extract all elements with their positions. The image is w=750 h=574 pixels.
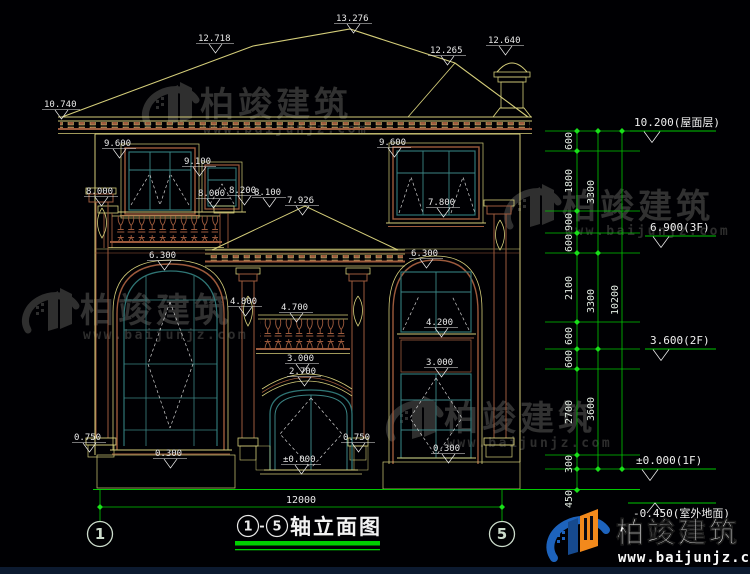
svg-text:4.800: 4.800 bbox=[230, 297, 257, 307]
svg-text:3.600(2F): 3.600(2F) bbox=[650, 334, 710, 347]
svg-text:7.800: 7.800 bbox=[428, 198, 455, 208]
dim-1800: 1800 bbox=[564, 169, 575, 193]
svg-text:9.600: 9.600 bbox=[379, 138, 406, 148]
footer-url: www.baijunjz.com bbox=[618, 550, 750, 566]
dim-600-a: 600 bbox=[564, 132, 575, 150]
elevation-drawing: 柏竣建筑 www.baijunjz.com 柏竣建筑 www.baijunjz.… bbox=[0, 0, 750, 574]
svg-text:8.000: 8.000 bbox=[198, 189, 225, 199]
svg-text:6.300: 6.300 bbox=[149, 251, 176, 261]
svg-text:0.750: 0.750 bbox=[74, 433, 101, 443]
svg-text:±0.000(1F): ±0.000(1F) bbox=[636, 454, 702, 467]
svg-text:6.900(3F): 6.900(3F) bbox=[650, 221, 710, 234]
svg-text:3.000: 3.000 bbox=[426, 358, 453, 368]
svg-text:12.265: 12.265 bbox=[430, 46, 463, 56]
dim-600-b: 600 bbox=[564, 234, 575, 252]
svg-text:13.276: 13.276 bbox=[336, 14, 369, 24]
logo-building-blue bbox=[568, 518, 578, 555]
svg-text:4.700: 4.700 bbox=[281, 303, 308, 313]
svg-text:10.740: 10.740 bbox=[44, 100, 77, 110]
dim-300: 300 bbox=[564, 455, 575, 473]
svg-text:8.200: 8.200 bbox=[229, 186, 256, 196]
footer-brand: 柏竣建筑 bbox=[616, 516, 740, 549]
svg-text:2.700: 2.700 bbox=[289, 367, 316, 377]
svg-text:3.000: 3.000 bbox=[287, 354, 314, 364]
svg-text:0.300: 0.300 bbox=[155, 449, 182, 459]
svg-text:8.000: 8.000 bbox=[86, 187, 113, 197]
dim-3300-a: 3300 bbox=[586, 180, 597, 204]
axis-5-label: 5 bbox=[497, 525, 507, 543]
dim-600-c: 600 bbox=[564, 327, 575, 345]
svg-text:4.200: 4.200 bbox=[426, 318, 453, 328]
bottom-strip bbox=[0, 567, 750, 574]
dim-2700: 2700 bbox=[564, 400, 575, 424]
balcony-2f bbox=[256, 315, 350, 354]
svg-text:8.100: 8.100 bbox=[254, 188, 281, 198]
dim-2100: 2100 bbox=[564, 276, 575, 300]
svg-text:12.718: 12.718 bbox=[198, 34, 231, 44]
svg-text:7.926: 7.926 bbox=[287, 196, 314, 206]
dim-10200: 10200 bbox=[610, 285, 621, 315]
svg-text:10.200(屋面层): 10.200(屋面层) bbox=[634, 116, 720, 129]
axis-1-label: 1 bbox=[95, 525, 105, 543]
cad-viewport: 柏竣建筑 www.baijunjz.com 柏竣建筑 www.baijunjz.… bbox=[0, 0, 750, 574]
title-underline bbox=[235, 541, 380, 546]
dim-600-d: 600 bbox=[564, 350, 575, 368]
title-text: 轴立面图 bbox=[290, 515, 382, 539]
svg-text:1: 1 bbox=[243, 520, 252, 535]
svg-text:柏竣建筑: 柏竣建筑 bbox=[80, 291, 232, 331]
dim-900: 900 bbox=[564, 213, 575, 231]
svg-text:9.100: 9.100 bbox=[184, 157, 211, 167]
overall-width-dim: 12000 bbox=[286, 495, 316, 506]
dim-450: 450 bbox=[564, 490, 575, 508]
svg-text:www.baijunjz.com: www.baijunjz.com bbox=[447, 436, 612, 451]
svg-text:6.300: 6.300 bbox=[411, 249, 438, 259]
svg-text:12.640: 12.640 bbox=[488, 36, 521, 46]
logo-building-orange bbox=[580, 509, 598, 552]
dim-3300-b: 3300 bbox=[586, 289, 597, 313]
svg-text:±0.000: ±0.000 bbox=[283, 455, 316, 465]
svg-text:0.300: 0.300 bbox=[433, 444, 460, 454]
watermark-brand: 柏竣建筑 bbox=[200, 85, 352, 125]
dim-3600: 3600 bbox=[586, 397, 597, 421]
svg-text:5: 5 bbox=[272, 520, 281, 535]
svg-text:-: - bbox=[259, 520, 264, 535]
svg-text:0.750: 0.750 bbox=[343, 433, 370, 443]
svg-text:9.600: 9.600 bbox=[104, 139, 131, 149]
